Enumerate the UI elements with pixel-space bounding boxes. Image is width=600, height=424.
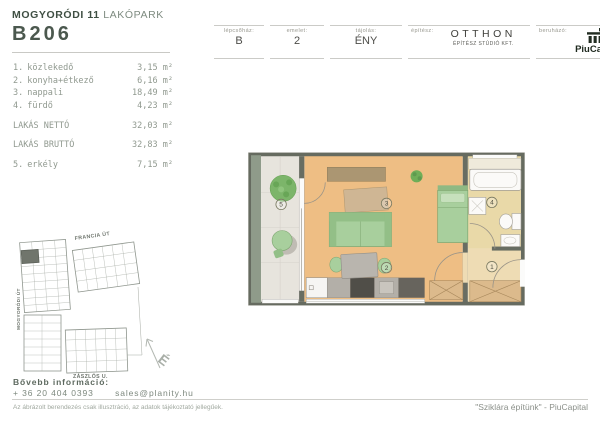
site-building-topleft <box>20 239 71 312</box>
meta-staircase: lépcsőház: B <box>214 25 264 59</box>
balcony-tree-icon <box>270 175 296 201</box>
room-badge-living: 3 <box>381 198 391 208</box>
north-label: É <box>155 351 172 369</box>
room-badge-bath: 4 <box>487 197 497 207</box>
site-building-topright <box>72 242 139 292</box>
gross-area-row: LAKÁS BRUTTÓ 32,83 m² <box>13 140 173 150</box>
disclaimer-text: Az ábrázolt berendezés csak illusztráció… <box>13 404 223 411</box>
site-courtyard-line <box>127 287 142 355</box>
unit-meta-table: lépcsőház: B emelet: 2 tájolás: ÉNY épít… <box>214 25 600 59</box>
net-area-row: LAKÁS NETTÓ 32,03 m² <box>13 121 173 131</box>
room-name: nappali <box>27 88 63 98</box>
room-number: 3. <box>13 88 23 98</box>
contact-line: + 36 20 404 0393 sales@planity.hu <box>13 388 194 398</box>
developer-name: PiuCapital <box>575 44 600 55</box>
site-building-bottomleft <box>24 315 61 371</box>
room-badge-hall: 1 <box>487 261 497 271</box>
floor-plan: 5 3 2 4 1 <box>248 152 525 306</box>
project-name: MOGYORÓDI 11 <box>12 9 100 21</box>
project-title: MOGYORÓDI 11 LAKÓPARK <box>12 9 164 21</box>
sofa <box>329 212 391 246</box>
plant-icon <box>411 170 423 182</box>
gross-area-label: LAKÁS BRUTTÓ <box>13 140 74 150</box>
meta-architect: építész: OTTHON ÉPÍTÉSZ STÚDIÓ KFT. <box>408 25 530 59</box>
staircase-value: B <box>217 35 261 47</box>
meta-floor: emelet: 2 <box>270 25 324 59</box>
toilet <box>512 213 521 229</box>
phone-number: + 36 20 404 0393 <box>13 388 94 398</box>
kitchen-counter <box>306 278 424 298</box>
room-badge-kitchen: 2 <box>381 262 391 272</box>
developer-label: beruházó: <box>539 28 567 55</box>
orientation-label: tájolás: <box>333 28 399 34</box>
svg-text:1: 1 <box>490 264 494 271</box>
room-number: 4. <box>13 101 23 111</box>
room-name: közlekedő <box>27 63 73 73</box>
room-name: erkély <box>27 160 58 170</box>
room-area-list: 1.közlekedő 3,15 m² 2.konyha+étkező 6,16… <box>13 63 173 170</box>
room-area: 3,15 m² <box>137 63 173 73</box>
unit-id: B206 <box>12 23 72 46</box>
balcony-row: 5.erkély 7,15 m² <box>13 160 173 170</box>
gross-area-value: 32,83 m² <box>132 140 173 150</box>
room-number: 5. <box>13 160 23 170</box>
piucapital-logo-icon <box>586 28 600 43</box>
room-name: fürdő <box>27 101 53 111</box>
dresser <box>344 187 389 213</box>
svg-text:2: 2 <box>385 265 389 272</box>
sideboard <box>327 167 385 181</box>
room-list-item: 4.fürdő 4,23 m² <box>13 101 173 111</box>
site-building-bottomright <box>65 328 127 373</box>
architect-name: OTTHON <box>439 28 527 40</box>
project-suffix: LAKÓPARK <box>100 9 164 21</box>
street-label-top: FRANCIA ÚT <box>74 230 111 242</box>
svg-text:3: 3 <box>385 201 389 208</box>
floor-label: emelet: <box>273 28 321 34</box>
room-area: 7,15 m² <box>137 160 173 170</box>
bed <box>438 185 468 242</box>
email-address: sales@planity.hu <box>115 388 194 398</box>
room-area: 6,16 m² <box>137 76 173 86</box>
svg-text:5: 5 <box>279 202 283 209</box>
street-label-left: MOGYORÓDI ÚT <box>15 288 22 330</box>
meta-developer: beruházó: PiuCapital <box>536 25 600 59</box>
room-list-item: 2.konyha+étkező 6,16 m² <box>13 76 173 86</box>
footer-divider <box>12 399 588 400</box>
unit-underline <box>12 52 170 53</box>
staircase-label: lépcsőház: <box>217 28 261 34</box>
site-plan: FRANCIA ÚT MOGYORÓDI ÚT ZÁSZLÓS U. É <box>15 227 190 379</box>
company-slogan: "Sziklára építünk" - PiuCapital <box>475 402 588 412</box>
room-name: konyha+étkező <box>27 76 94 86</box>
room-area: 4,23 m² <box>137 101 173 111</box>
architect-label: építész: <box>411 28 433 55</box>
net-area-value: 32,03 m² <box>132 121 173 131</box>
orientation-value: ÉNY <box>333 35 399 47</box>
room-badge-balcony: 5 <box>276 199 286 209</box>
architect-subtitle: ÉPÍTÉSZ STÚDIÓ KFT. <box>439 41 527 47</box>
room-number: 2. <box>13 76 23 86</box>
room-area: 18,49 m² <box>132 88 173 98</box>
more-info-label: Bővebb információ: <box>13 377 109 387</box>
doormats <box>430 281 521 302</box>
svg-text:4: 4 <box>490 200 494 207</box>
meta-orientation: tájolás: ÉNY <box>330 25 402 59</box>
room-list-item: 3.nappali 18,49 m² <box>13 88 173 98</box>
balcony-outer-wall <box>251 155 261 303</box>
room-number: 1. <box>13 63 23 73</box>
apartment-datasheet: MOGYORÓDI 11 LAKÓPARK B206 lépcsőház: B … <box>0 0 600 424</box>
net-area-label: LAKÁS NETTÓ <box>13 121 69 131</box>
site-highlighted-unit <box>21 249 39 263</box>
room-list-item: 1.közlekedő 3,15 m² <box>13 63 173 73</box>
floor-value: 2 <box>273 35 321 47</box>
